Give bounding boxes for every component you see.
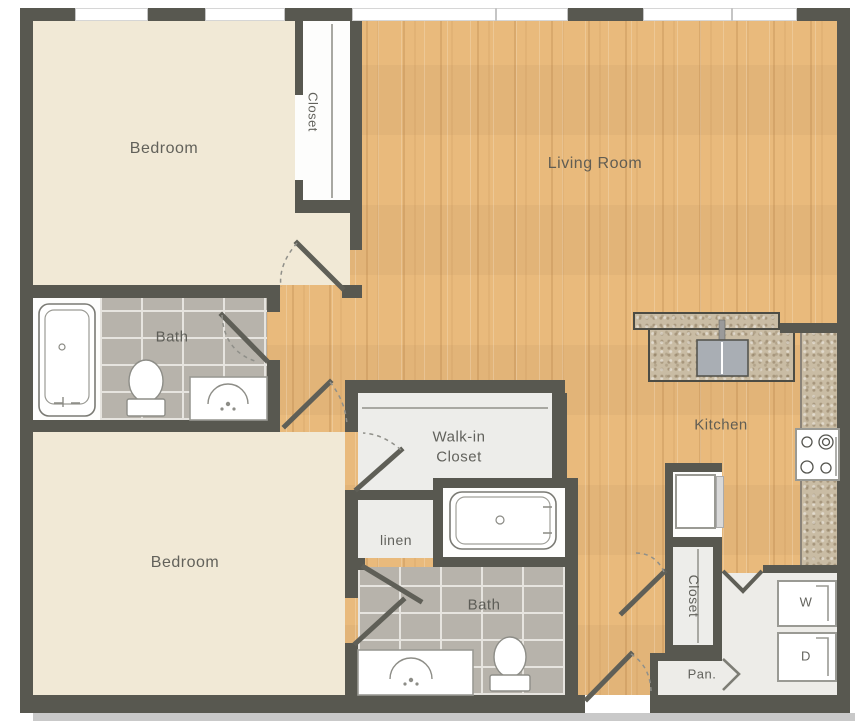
door-swing-arcs [222,243,664,691]
door-leaf-entry [587,654,631,699]
door-leaf-walkin [357,450,401,489]
room-label-walk-in-closet: Walk-in Closet [419,428,499,467]
bathtub-2-icon [450,492,556,549]
door-arc-bedroom-bottom [330,382,347,426]
room-label-bath-top: Bath [156,329,189,346]
bifold-door [723,571,762,591]
appliance-label-washer: W [800,595,813,610]
dryer-door-mark [816,638,828,676]
door-leaves [222,243,664,699]
room-label-linen: linen [380,532,412,548]
bathtub-icon [39,304,95,416]
room-label-bedroom-top: Bedroom [130,140,198,158]
door-leaf-hall [622,572,664,613]
floor-plan: Bedroom Closet Living Room Bath Bedroom … [0,0,866,725]
washer-door-mark [816,586,828,621]
appliance-label-dryer: D [801,649,811,664]
room-label-bedroom-bottom: Bedroom [151,554,219,572]
room-label-living-room: Living Room [548,155,642,173]
room-label-kitchen: Kitchen [694,417,748,434]
pantry-door-chevron [723,659,739,690]
room-label-pantry: Pan. [688,667,717,682]
door-leaf-linen [364,567,420,601]
door-arc-hall [633,553,664,572]
room-label-closet-bedroom-top: Closet [306,92,321,132]
toilet-2-icon [490,637,530,691]
sink-vanity-2-icon [358,650,473,695]
fixtures-and-doors-layer [0,0,866,725]
room-label-bath-bottom: Bath [468,597,501,614]
door-arc-entry [631,654,651,691]
toilet-icon [127,360,165,416]
stove-burners-icon [801,435,836,476]
door-leaf-bath-top [222,315,266,360]
kitchen-sink-icon [697,320,748,376]
sink-vanity-icon [190,377,267,420]
door-leaf-bedroom-top [297,243,342,288]
room-label-closet-hall: Closet [686,575,702,618]
door-arc-walkin [363,433,401,450]
door-leaf-bath-bottom [356,600,403,643]
door-arc-bedroom-top [281,243,297,287]
door-leaf-bedroom-bottom [285,382,330,426]
